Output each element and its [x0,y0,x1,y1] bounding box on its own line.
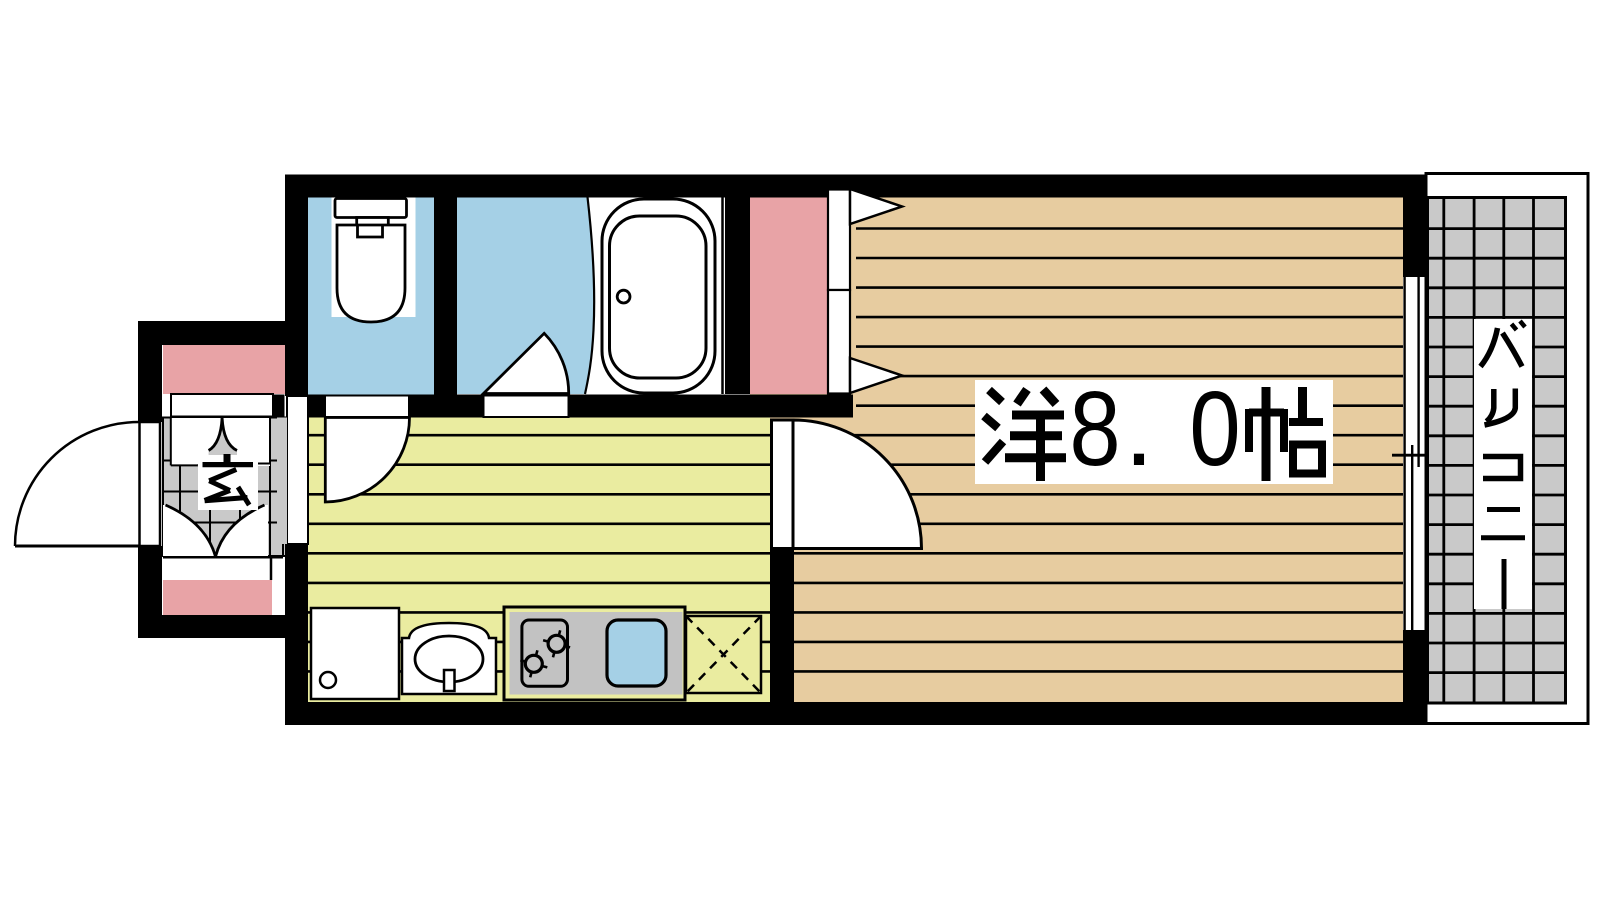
svg-text:.: . [1124,370,1153,488]
svg-text:0: 0 [1189,370,1240,488]
svg-text:8: 8 [1069,370,1120,488]
